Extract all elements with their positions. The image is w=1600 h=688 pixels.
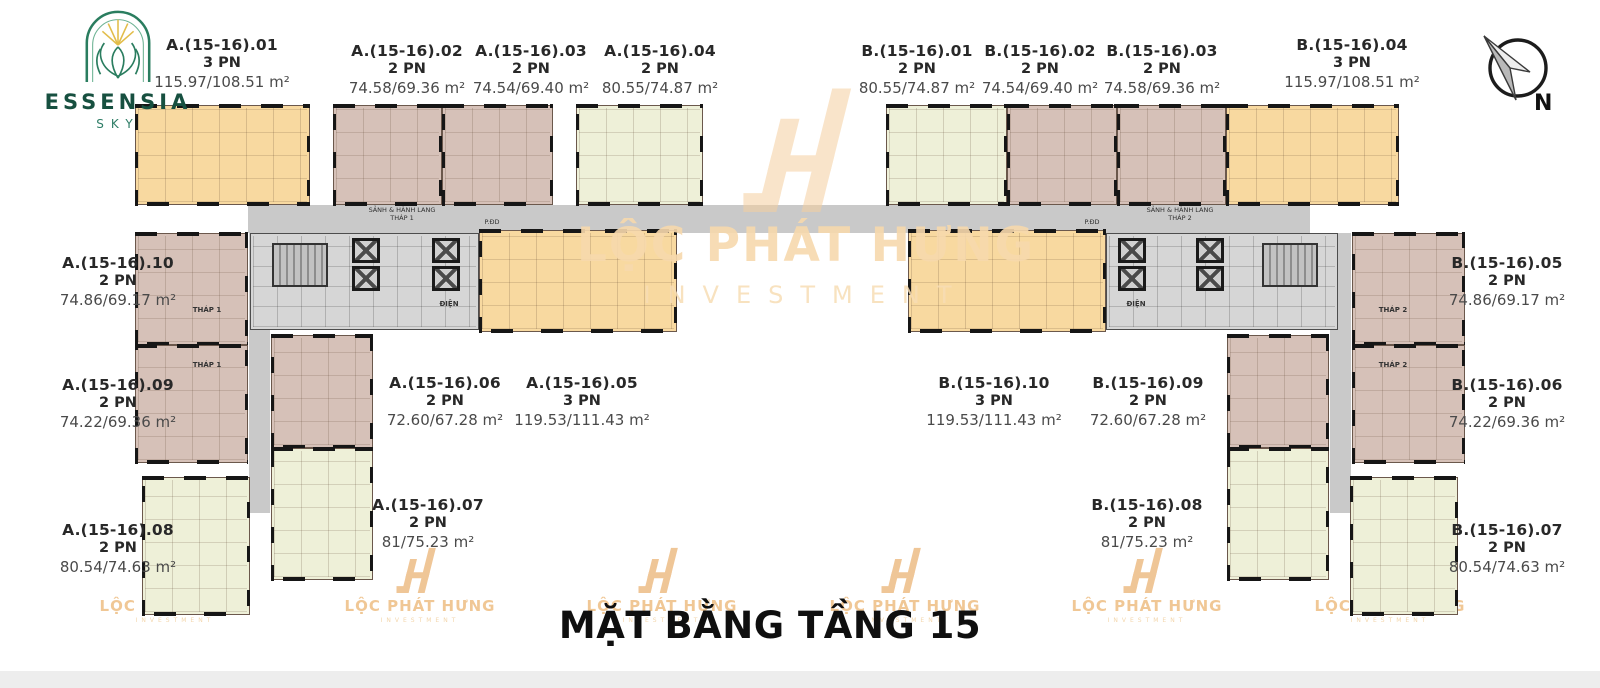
bottom-page-strip (0, 671, 1600, 688)
unit-plan-b10 (908, 230, 1106, 332)
elevator-icon (1196, 238, 1224, 263)
unit-label-a06: A.(15-16).062 PN72.60/67.28 m² (387, 374, 503, 429)
watermark-subtext: INVESTMENT (100, 617, 251, 624)
unit-label-a09: A.(15-16).092 PN74.22/69.36 m² (60, 376, 176, 431)
core-electrical-label: ĐIỆN (439, 300, 458, 308)
wing-tower2-label: THÁP 2 (1379, 361, 1408, 369)
elevator-icon (352, 266, 380, 291)
unit-plan-b04 (1226, 105, 1399, 205)
unit-label-a04: A.(15-16).042 PN80.55/74.87 m² (602, 42, 718, 97)
unit-plan-b09 (1227, 335, 1329, 448)
corridor-room-label: P.ĐD (1084, 218, 1099, 226)
elevator-icon (432, 238, 460, 263)
unit-plan-a02 (333, 105, 442, 205)
elevator-icon (352, 238, 380, 263)
watermark-subtext: INVESTMENT (345, 617, 496, 624)
unit-label-b07: B.(15-16).072 PN80.54/74.63 m² (1449, 521, 1565, 576)
unit-label-a05: A.(15-16).053 PN119.53/111.43 m² (514, 374, 649, 429)
lh-logo-icon (633, 547, 691, 593)
unit-label-b02: B.(15-16).022 PN74.54/69.40 m² (982, 42, 1098, 97)
unit-label-b03: B.(15-16).032 PN74.58/69.36 m² (1104, 42, 1220, 97)
unit-label-b01: B.(15-16).012 PN80.55/74.87 m² (859, 42, 975, 97)
watermark-loc-phat-hung: LỘC PHÁT HƯNG INVESTMENT (1072, 547, 1223, 624)
watermark-subtext: INVESTMENT (1315, 617, 1466, 624)
unit-plan-a05 (479, 230, 677, 332)
brand-subname: SKY (28, 117, 208, 131)
wing-tower1-label: THÁP 1 (193, 361, 222, 369)
elevator-icon (1118, 266, 1146, 291)
unit-plan-b07 (1350, 477, 1458, 615)
unit-plan-a07 (271, 448, 373, 580)
unit-plan-a04 (576, 105, 703, 205)
unit-label-a10: A.(15-16).102 PN74.86/69.17 m² (60, 254, 176, 309)
elevator-icon (1196, 266, 1224, 291)
wing-tower2-label: THÁP 2 (1379, 306, 1408, 314)
corridor-label-tower1: SẢNH & HÀNH LANGTHÁP 1 (369, 206, 436, 223)
essensia-emblem-icon (70, 6, 166, 84)
watermark-text: LỘC PHÁT HƯNG (1072, 597, 1223, 615)
unit-plan-b01 (886, 105, 1007, 205)
unit-label-b06: B.(15-16).062 PN74.22/69.36 m² (1449, 376, 1565, 431)
unit-label-a02: A.(15-16).022 PN74.58/69.36 m² (349, 42, 465, 97)
unit-plan-b02 (1007, 105, 1117, 205)
unit-label-a08: A.(15-16).082 PN80.54/74.63 m² (60, 521, 176, 576)
unit-label-b09: B.(15-16).092 PN72.60/67.28 m² (1090, 374, 1206, 429)
unit-plan-a03 (442, 105, 553, 205)
compass: N (1468, 24, 1568, 124)
unit-label-b05: B.(15-16).052 PN74.86/69.17 m² (1449, 254, 1565, 309)
lh-logo-icon (391, 547, 449, 593)
compass-north-label: N (1534, 91, 1552, 116)
stairs-icon (1262, 243, 1318, 287)
unit-plan-b08 (1227, 448, 1329, 580)
unit-plan-b03 (1117, 105, 1226, 205)
unit-label-b08: B.(15-16).082 PN81/75.23 m² (1091, 496, 1202, 551)
elevator-icon (432, 266, 460, 291)
lh-logo-icon (703, 86, 908, 212)
unit-label-b04: B.(15-16).043 PN115.97/108.51 m² (1284, 36, 1419, 91)
unit-label-a01: A.(15-16).013 PN115.97/108.51 m² (154, 36, 289, 91)
brand-name: ESSENSIA (28, 90, 208, 114)
elevator-icon (1118, 238, 1146, 263)
unit-label-a07: A.(15-16).072 PN81/75.23 m² (372, 496, 484, 551)
unit-label-a03: A.(15-16).032 PN74.54/69.40 m² (473, 42, 589, 97)
corridor-label-tower2: SẢNH & HÀNH LANGTHÁP 2 (1147, 206, 1214, 223)
watermark-text: LỘC PHÁT HƯNG (345, 597, 496, 615)
watermark-subtext: INVESTMENT (1072, 617, 1223, 624)
page-title: MẶT BẰNG TẦNG 15 (559, 604, 981, 647)
unit-plan-a06 (271, 335, 373, 448)
corridor-room-label: P.ĐD (484, 218, 499, 226)
lh-logo-icon (1118, 547, 1176, 593)
lh-logo-icon (876, 547, 934, 593)
unit-label-b10: B.(15-16).103 PN119.53/111.43 m² (926, 374, 1061, 429)
stairs-icon (272, 243, 328, 287)
wing-tower1-label: THÁP 1 (193, 306, 222, 314)
core-electrical-label: ĐIỆN (1126, 300, 1145, 308)
